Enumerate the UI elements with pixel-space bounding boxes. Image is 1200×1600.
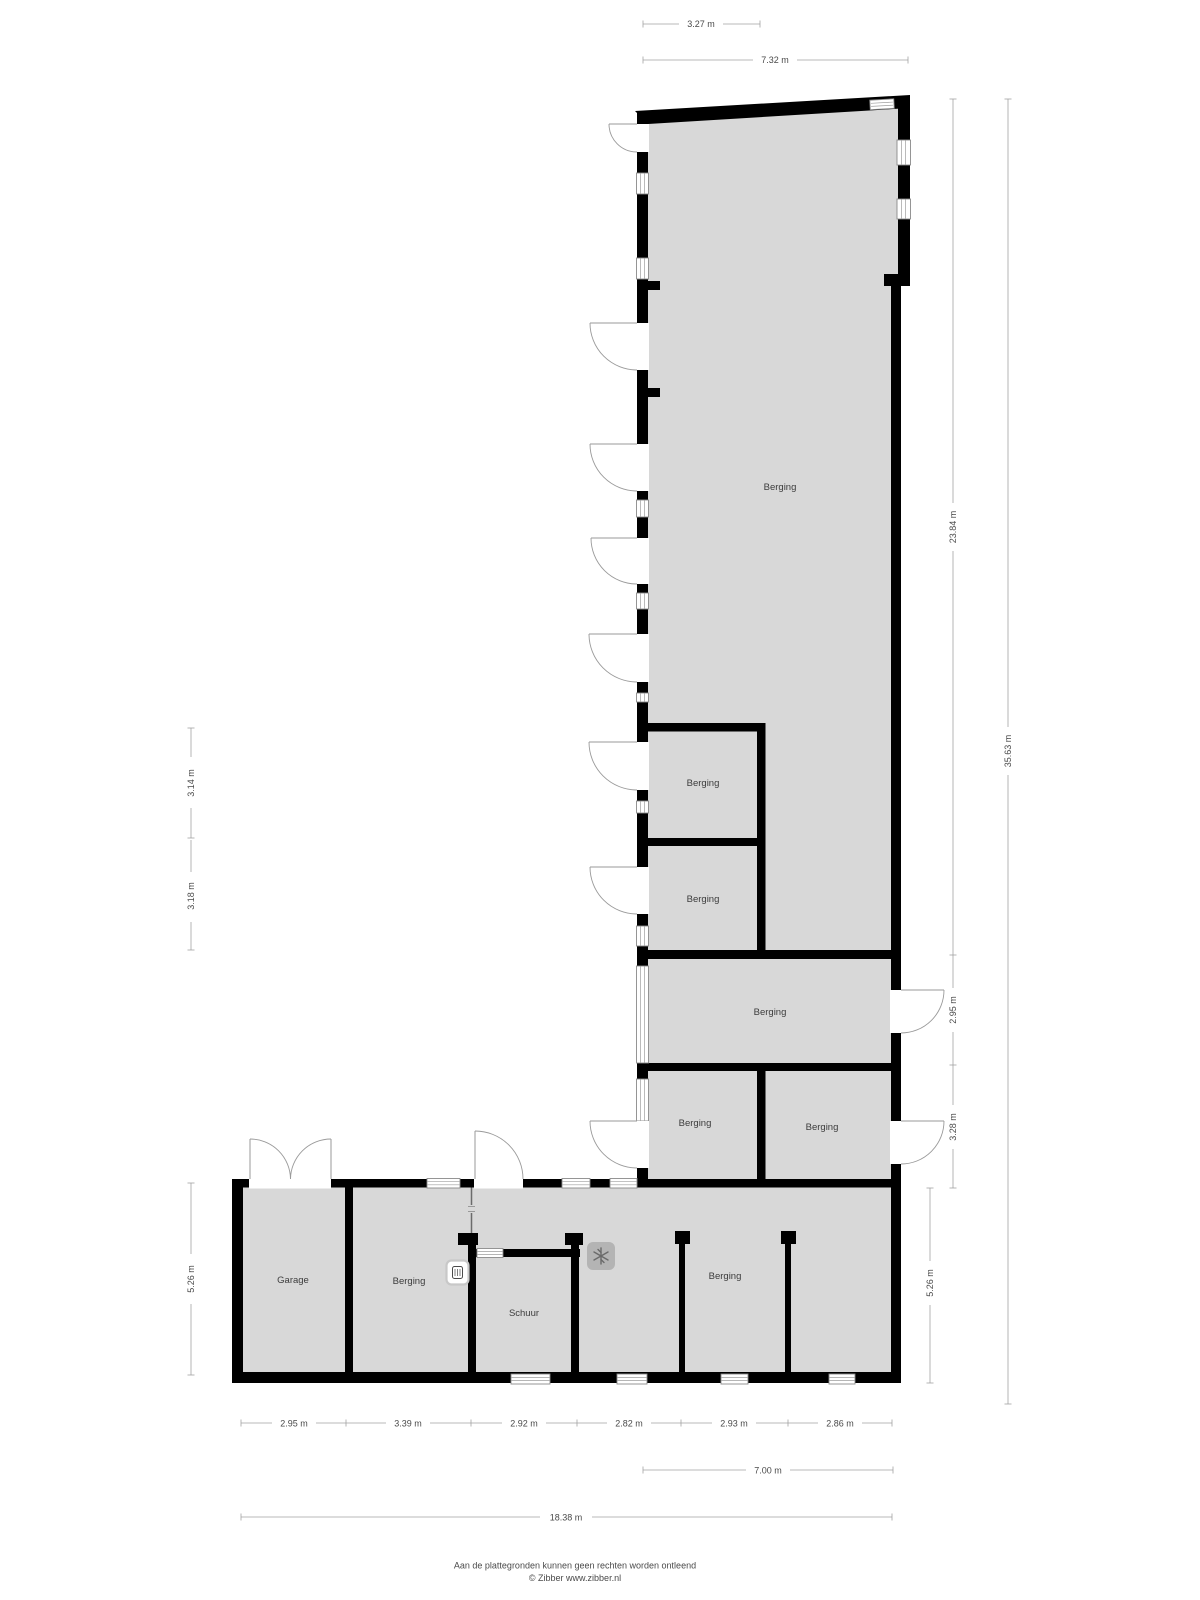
dim-bottom-1838: 18.38 m [241, 1513, 892, 1523]
double-door-swing [249, 1139, 331, 1189]
door-swing [609, 124, 649, 152]
wall-rooms-right [757, 723, 766, 959]
window [637, 693, 649, 702]
svg-text:3.14 m: 3.14 m [186, 769, 196, 797]
wall-right-upper [898, 96, 910, 284]
room-label-berging-lower-right: Berging [806, 1122, 839, 1133]
svg-text:2.93 m: 2.93 m [720, 1419, 748, 1429]
dim-right-295: 2.95 m [948, 955, 958, 1065]
floor-plan: Berging Berging Berging Berging Berging … [0, 0, 1200, 1600]
svg-text:3.18 m: 3.18 m [186, 882, 196, 910]
wall-cap [781, 1231, 796, 1244]
window [870, 99, 894, 110]
door-swing [890, 1121, 944, 1164]
window [610, 1179, 637, 1189]
dim-bottom-row: 2.95 m 3.39 m 2.92 m 2.82 m 2.93 m 2.86 … [241, 1419, 892, 1429]
dim-right-2384: 23.84 m [948, 99, 958, 955]
window-sill [721, 1374, 748, 1384]
room-label-berging-upper-2: Berging [687, 894, 720, 905]
room-label-berging-main: Berging [764, 482, 797, 493]
room-label-schuur: Schuur [509, 1308, 539, 1319]
svg-text:2.86 m: 2.86 m [826, 1419, 854, 1429]
wall-garage-divider [345, 1187, 353, 1372]
svg-text:23.84 m: 23.84 m [948, 511, 958, 544]
window [897, 199, 911, 219]
room-label-berging-middle: Berging [754, 1007, 787, 1018]
door-swing [591, 538, 649, 584]
window [637, 173, 649, 194]
window [477, 1249, 503, 1258]
svg-text:3.27 m: 3.27 m [687, 19, 715, 29]
door-swing [589, 742, 649, 790]
window [637, 500, 649, 517]
wall-right-lower [891, 274, 901, 1383]
wall-cap [565, 1233, 583, 1245]
door-swing [590, 444, 649, 491]
wall-stub-1 [645, 281, 660, 290]
window [637, 801, 649, 813]
window [897, 140, 911, 165]
svg-text:5.26 m: 5.26 m [186, 1265, 196, 1293]
dim-left-318: 3.18 m [186, 840, 196, 950]
window [562, 1179, 590, 1189]
window-sill [617, 1374, 647, 1384]
wall-stub-2 [645, 388, 660, 397]
wall-bottomwing-bottom [232, 1372, 901, 1383]
door-swing [590, 1121, 649, 1168]
footer-credit: © Zibber www.zibber.nl [529, 1573, 621, 1583]
wall-lower-divider [757, 1071, 766, 1179]
svg-text:2.92 m: 2.92 m [510, 1419, 538, 1429]
svg-text:18.38 m: 18.38 m [550, 1513, 583, 1523]
dim-right-526: 5.26 m [925, 1188, 935, 1383]
wall-stall-fin-2 [785, 1244, 791, 1372]
dim-left-314: 3.14 m [186, 728, 196, 838]
room-label-berging-east: Berging [709, 1271, 742, 1282]
dim-top-2: 7.32 m [643, 55, 908, 65]
door-swing [590, 867, 649, 914]
window [427, 1179, 460, 1189]
dim-right-3563: 35.63 m [1003, 99, 1013, 1404]
svg-text:3.39 m: 3.39 m [394, 1419, 422, 1429]
dim-bottom-700: 7.00 m [643, 1466, 893, 1476]
window [637, 1079, 649, 1121]
window-sill [511, 1374, 550, 1384]
svg-text:2.95 m: 2.95 m [948, 996, 958, 1024]
door-swing [890, 990, 944, 1033]
svg-text:5.26 m: 5.26 m [925, 1269, 935, 1297]
wall-room1-top [643, 723, 765, 732]
footer: Aan de plattegronden kunnen geen rechten… [454, 1561, 696, 1584]
window-band [637, 966, 649, 1063]
svg-text:3.28 m: 3.28 m [948, 1113, 958, 1141]
door-swing [590, 323, 649, 370]
wall-stall-fin-1 [679, 1244, 685, 1372]
ventilation-icon [587, 1242, 615, 1270]
door-swing [589, 634, 649, 682]
dim-right-328: 3.28 m [948, 1065, 958, 1188]
door-swing [474, 1131, 523, 1189]
room-label-garage: Garage [277, 1275, 309, 1286]
building-floor [232, 96, 910, 1383]
svg-text:2.82 m: 2.82 m [615, 1419, 643, 1429]
svg-text:2.95 m: 2.95 m [280, 1419, 308, 1429]
wall-bottomwing-left [232, 1179, 243, 1383]
svg-text:35.63 m: 35.63 m [1003, 735, 1013, 768]
room-label-berging-lower-left: Berging [679, 1118, 712, 1129]
window [637, 926, 649, 946]
svg-text:7.32 m: 7.32 m [761, 55, 789, 65]
room-label-berging-upper-1: Berging [687, 778, 720, 789]
dim-left-526: 5.26 m [186, 1183, 196, 1375]
window [637, 258, 649, 279]
wall-room-divider [643, 838, 757, 846]
wall-cap [675, 1231, 690, 1244]
window-sill [829, 1374, 855, 1384]
wall-schuur-right [571, 1245, 579, 1372]
wall-cap [458, 1233, 478, 1245]
wall-band-top [645, 950, 891, 959]
radiator-icon [447, 1261, 469, 1285]
window [637, 593, 649, 609]
dim-top-1: 3.27 m [643, 19, 760, 29]
footer-disclaimer: Aan de plattegronden kunnen geen rechten… [454, 1561, 696, 1571]
svg-text:7.00 m: 7.00 m [754, 1466, 782, 1476]
room-label-berging-west: Berging [393, 1276, 426, 1287]
wall-band-bottom [645, 1063, 891, 1071]
